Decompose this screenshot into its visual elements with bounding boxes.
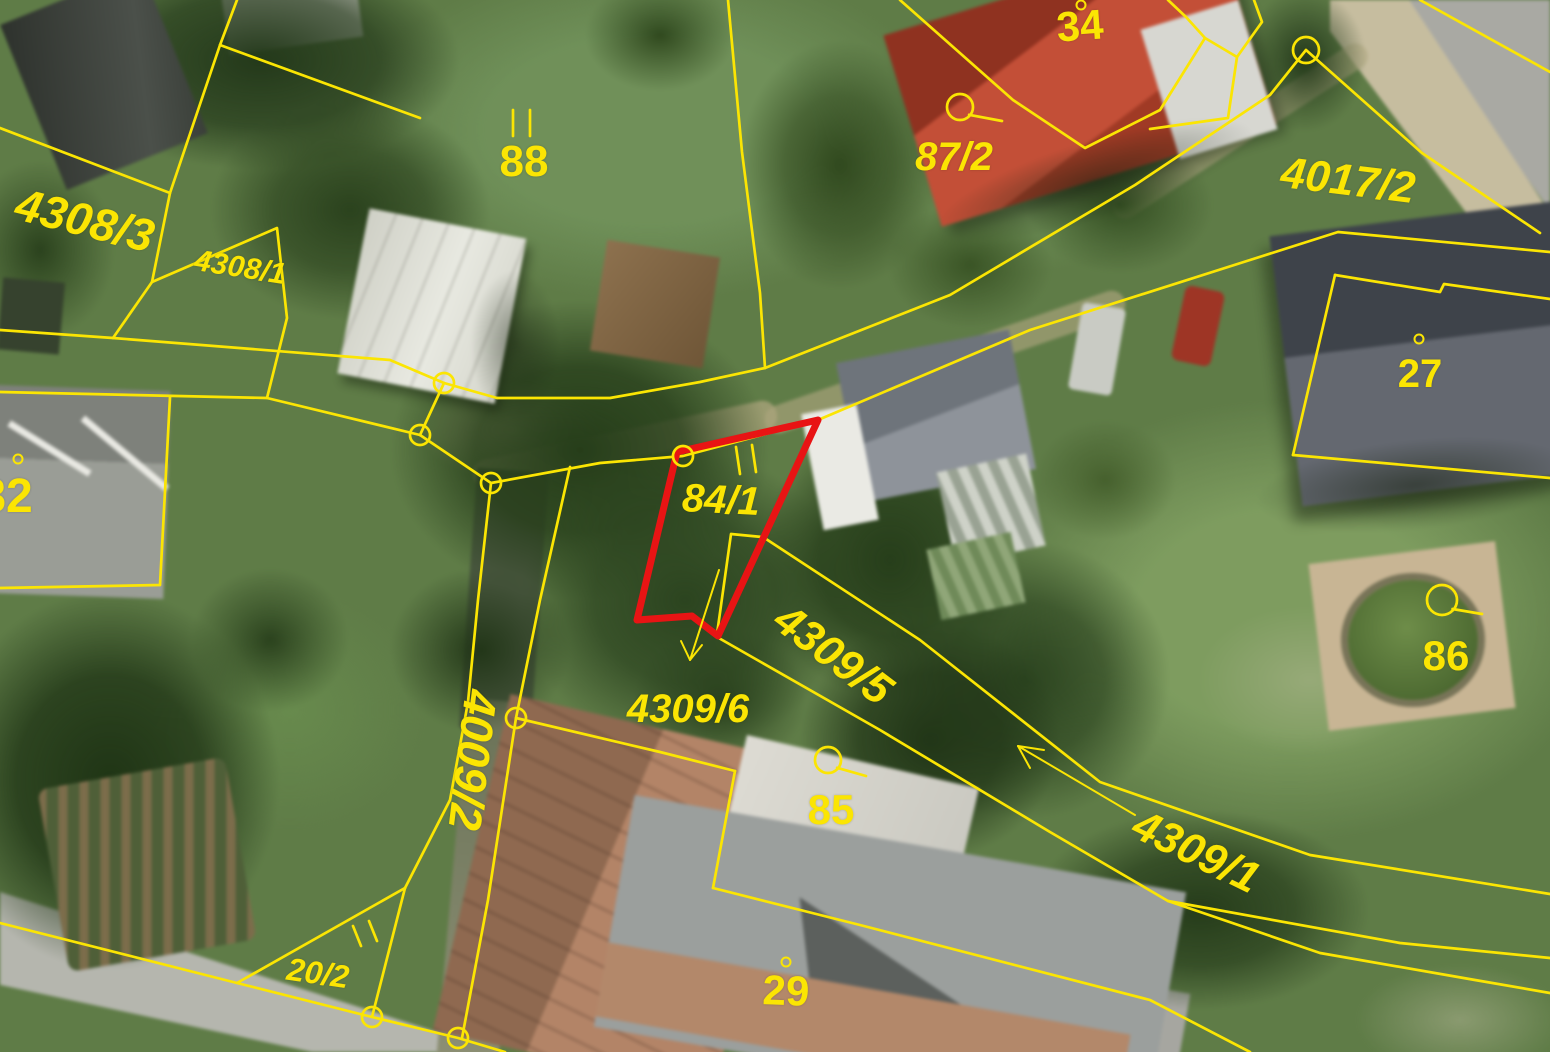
parcel-label-4309-1: 4309/1	[1126, 803, 1266, 902]
parcel-label-4017-2: 4017/2	[1279, 151, 1418, 211]
parcel-label-85: 85	[808, 789, 855, 831]
parcel-label-29: 29	[762, 969, 810, 1013]
parcel-label-87-2: 87/2	[915, 137, 993, 177]
parcel-label-4308-1: 4308/1	[192, 246, 287, 290]
parcel-label-84-1: 84/1	[681, 478, 761, 522]
parcel-label-27: 27	[1398, 354, 1443, 394]
parcel-labels-layer: 4308/34308/1883487/24017/2278284/14309/5…	[0, 0, 1550, 1052]
map-canvas[interactable]: 4308/34308/1883487/24017/2278284/14309/5…	[0, 0, 1550, 1052]
parcel-label-82: 82	[0, 473, 33, 521]
parcel-label-4309-5: 4309/5	[766, 597, 900, 713]
parcel-label-88: 88	[500, 140, 549, 184]
parcel-label-4009-2: 4009/2	[442, 687, 505, 832]
parcel-label-34: 34	[1055, 3, 1105, 48]
parcel-label-86: 86	[1423, 635, 1470, 677]
parcel-label-20-2: 20/2	[285, 953, 351, 993]
parcel-label-4308-3: 4308/3	[11, 181, 159, 260]
parcel-label-4309-6: 4309/6	[627, 689, 749, 729]
